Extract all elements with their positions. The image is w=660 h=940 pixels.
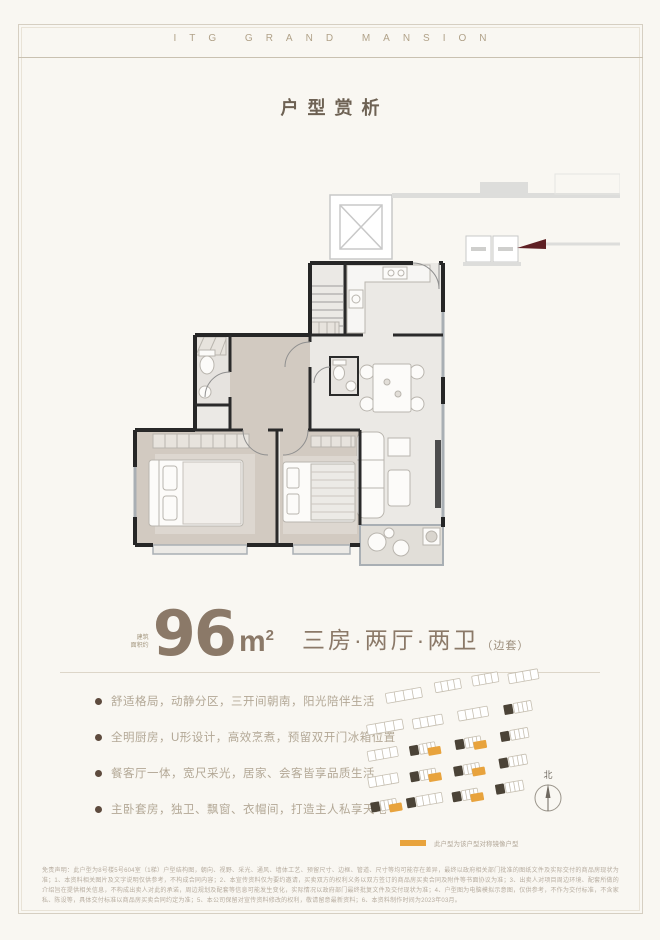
layout-text: 三房·两厅·两卫 [302,621,479,655]
feature-text: 餐客厅一体，宽尺采光，居家、会客皆享品质生活 [111,765,375,781]
legend-swatch [400,840,426,846]
bullet-dot-icon [95,806,102,813]
area-unit-base: m [239,625,266,658]
feature-item: 主卧套房，独卫、飘窗、衣帽间，打造主人私享天地 [95,801,375,817]
feature-item: 全明厨房，U形设计，高效烹煮，预留双开门冰箱位置 [95,729,375,745]
area-prefix: 建筑 面积约 [131,634,149,650]
compass-icon: 北 [535,770,561,811]
floor-plan-drawing [125,172,620,602]
elevator-core [330,195,392,259]
feature-text: 主卧套房，独卫、飘窗、衣帽间，打造主人私享天地 [111,801,387,817]
area-prefix-line1: 建筑 [131,634,149,642]
legend-text: 此户型为该户型对称镜像户型 [434,839,519,848]
area-prefix-line2: 面积约 [131,642,149,650]
page-title: 户型赏析 [0,94,660,120]
disclaimer-text: 免责声明：此户型为8号楼5号604室（1梯）户型结构图，朝向、视野、采光、通风、… [42,866,619,906]
svg-text:北: 北 [543,770,552,780]
brand-logo-text: ITG GRAND MANSION [0,33,660,44]
site-plan-buildings [362,668,558,820]
unit-summary: 建筑 面积约 96 m2 三房·两厅·两卫 （边套） [0,596,660,662]
site-plan-map: 北 此户型为该户型对称镜像户型 [362,668,574,858]
bullet-dot-icon [95,770,102,777]
bullet-dot-icon [95,734,102,741]
layout-tag: （边套） [481,637,529,653]
feature-list: 舒适格局，动静分区，三开间朝南，阳光陪伴生活 全明厨房，U形设计，高效烹煮，预留… [95,693,375,837]
area-unit-sup: 2 [266,627,274,644]
site-plan-legend: 此户型为该户型对称镜像户型 [400,839,519,848]
poster-page: ITG GRAND MANSION 户型赏析 [0,0,660,940]
public-corridor [392,174,620,266]
header-divider [18,57,643,58]
bullet-dot-icon [95,698,102,705]
area-value: 96 [153,606,235,662]
feature-item: 餐客厅一体，宽尺采光，居家、会客皆享品质生活 [95,765,375,781]
entry-direction-marker [517,239,546,249]
feature-text: 全明厨房，U形设计，高效烹煮，预留双开门冰箱位置 [111,729,396,745]
area-unit: m2 [239,625,274,659]
feature-item: 舒适格局，动静分区，三开间朝南，阳光陪伴生活 [95,693,375,709]
feature-text: 舒适格局，动静分区，三开间朝南，阳光陪伴生活 [111,693,375,709]
